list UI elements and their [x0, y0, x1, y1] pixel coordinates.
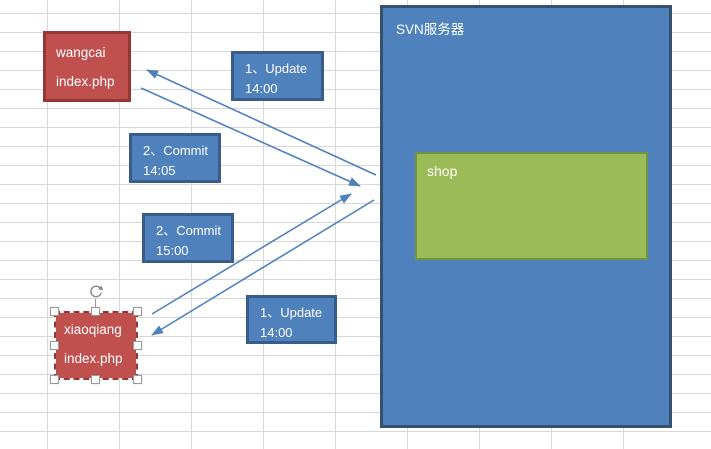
- wangcai-file-label: index.php: [56, 74, 128, 89]
- shop-label: shop: [427, 163, 457, 179]
- step-commit-xiaoqiang-time: 15:00: [156, 241, 231, 261]
- xiaoqiang-file-label: index.php: [64, 351, 136, 366]
- step-commit-xiaoqiang-action: 2、Commit: [156, 221, 231, 241]
- wangcai-client-box[interactable]: wangcai index.php: [43, 31, 131, 102]
- step-update-xiaoqiang-box[interactable]: 1、Update 14:00: [246, 295, 337, 344]
- step-update-wangcai-box[interactable]: 1、Update 14:00: [231, 51, 324, 101]
- xiaoqiang-client-box[interactable]: xiaoqiang index.php: [54, 311, 138, 380]
- selection-handle-s[interactable]: [91, 375, 100, 384]
- selection-handle-nw[interactable]: [50, 307, 59, 316]
- step-update-wangcai-action: 1、Update: [245, 59, 321, 79]
- xiaoqiang-name-label: xiaoqiang: [64, 322, 136, 337]
- step-update-xiaoqiang-action: 1、Update: [260, 303, 334, 323]
- selection-handle-se[interactable]: [133, 375, 142, 384]
- step-commit-wangcai-box[interactable]: 2、Commit 14:05: [129, 133, 221, 183]
- selection-handle-n[interactable]: [91, 307, 100, 316]
- rotate-handle-stem: [95, 299, 96, 308]
- svn-server-label: SVN服务器: [396, 22, 464, 37]
- shop-repository-box[interactable]: shop: [415, 152, 648, 260]
- step-commit-xiaoqiang-box[interactable]: 2、Commit 15:00: [142, 213, 234, 263]
- step-update-wangcai-time: 14:00: [245, 79, 321, 99]
- wangcai-name-label: wangcai: [56, 45, 128, 60]
- step-update-xiaoqiang-time: 14:00: [260, 323, 334, 343]
- selection-handle-sw[interactable]: [50, 375, 59, 384]
- selection-handle-w[interactable]: [50, 341, 59, 350]
- excel-drawing-canvas: SVN服务器 shop wangcai index.php 1、Update 1…: [0, 0, 711, 449]
- rotate-handle-icon[interactable]: [87, 282, 105, 300]
- step-commit-wangcai-time: 14:05: [143, 161, 218, 181]
- step-commit-wangcai-action: 2、Commit: [143, 141, 218, 161]
- selection-handle-ne[interactable]: [133, 307, 142, 316]
- selection-handle-e[interactable]: [133, 341, 142, 350]
